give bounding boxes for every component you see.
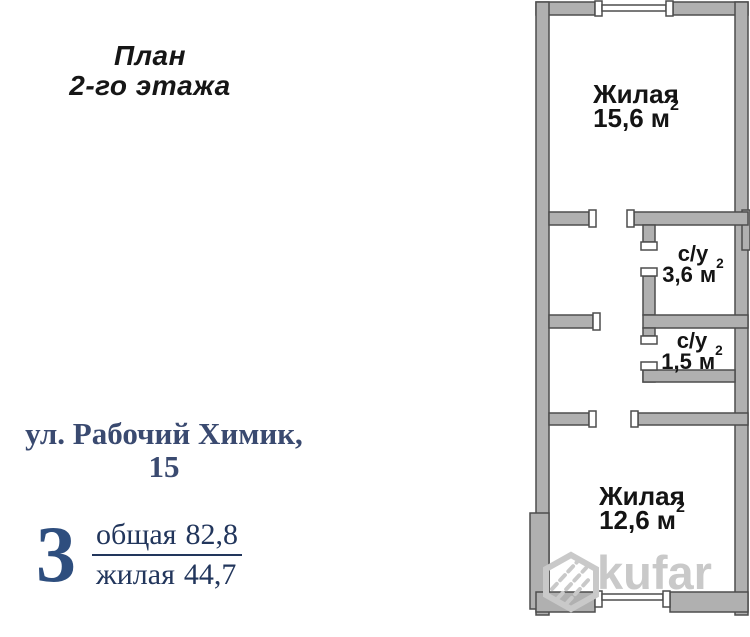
plan-title: План 2-го этажа [15,41,285,101]
room-label-bathroom-1: с/у 3,6м2 [662,243,723,285]
door-jamb [593,313,600,330]
total-area-row: общая82,8 [92,519,242,556]
door-jamb [627,210,634,227]
door-jamb [641,362,657,370]
door-jamb [589,411,596,427]
rooms-count: 3 [36,521,76,589]
window-jamb [666,1,673,16]
room-name: с/у [662,243,723,264]
listing-floorplan-image: Жилая 15,6м2 с/у 3,6м2 с/у 1,5м2 Жилая 1… [0,0,750,637]
kufar-watermark-text: kufar [597,549,712,596]
total-area-label: общая [96,518,176,551]
address-street: ул. Рабочий Химик, [3,417,325,450]
room-area: 15,6м2 [593,106,679,130]
area-fraction: общая82,8 жилая44,7 [92,519,242,591]
living-area-label: жилая [96,558,175,591]
living-area-row: жилая44,7 [92,556,242,591]
door-jamb [641,242,657,250]
room-area: 1,5м2 [661,351,722,372]
room-label-bathroom-2: с/у 1,5м2 [661,330,722,372]
address: ул. Рабочий Химик, 15 [3,417,325,483]
room-area: 12,6м2 [599,508,685,532]
room-label-living-top: Жилая 15,6м2 [593,82,679,130]
area-summary: 3 общая82,8 жилая44,7 [36,519,242,591]
door-jamb [641,268,657,276]
address-number: 15 [3,450,325,483]
kufar-hexagon-icon [546,555,596,609]
plan-title-line2: 2-го этажа [15,71,285,101]
plan-title-line1: План [15,41,285,71]
door-jamb [641,336,657,344]
room-label-living-bottom: Жилая 12,6м2 [599,484,685,532]
door-jamb [589,210,596,227]
living-area-value: 44,7 [184,558,237,591]
window-glass [602,5,666,11]
window-jamb [595,1,602,16]
door-jamb [631,411,638,427]
room-name: с/у [661,330,722,351]
total-area-value: 82,8 [185,518,238,551]
room-area: 3,6м2 [662,264,723,285]
